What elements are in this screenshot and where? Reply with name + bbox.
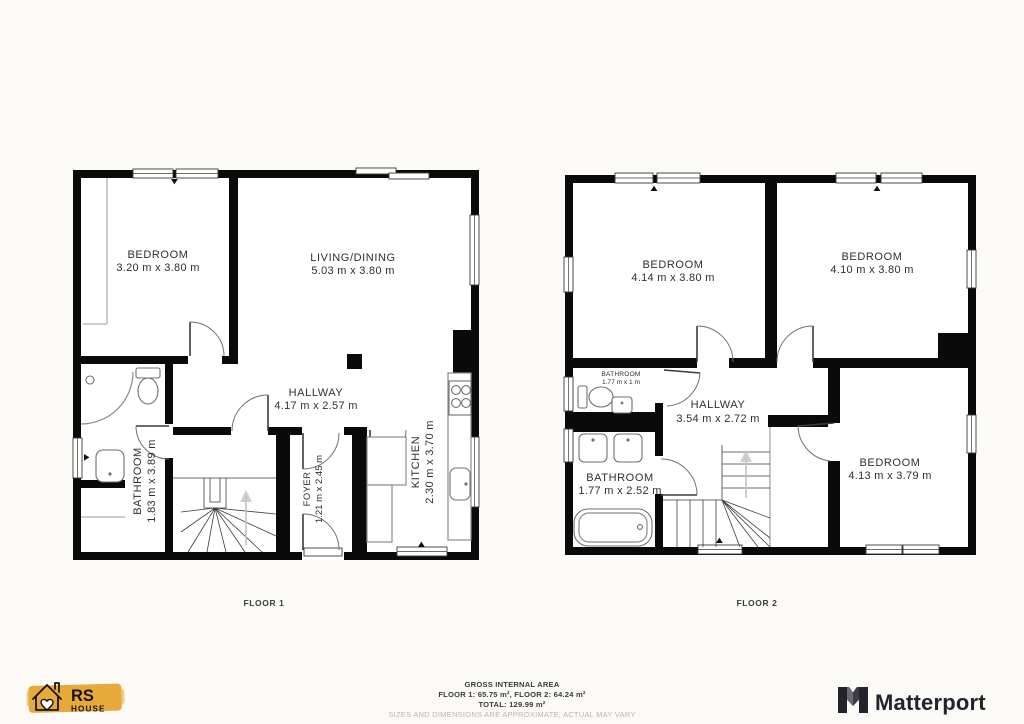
window <box>881 173 922 183</box>
room-label: HALLWAY <box>691 399 746 411</box>
window <box>564 377 573 411</box>
room-dims: 1.83 m x 3.89 m <box>146 439 158 522</box>
chimney-breast <box>938 333 968 358</box>
window <box>967 415 976 453</box>
matterport-icon <box>838 687 868 713</box>
chimney-breast <box>453 330 471 373</box>
room-label: LIVING/DINING <box>310 252 395 264</box>
room-dims: 4.14 m x 3.80 m <box>631 272 714 284</box>
room-label: BEDROOM <box>127 249 188 261</box>
entry-door <box>302 546 344 560</box>
room-label: BATHROOM <box>132 447 144 515</box>
sink-icon <box>450 468 470 500</box>
room-label: BEDROOM <box>859 457 920 469</box>
room-dims: 1.77 m x 2.52 m <box>578 485 661 497</box>
matterport-wordmark: Matterport <box>875 690 986 715</box>
footer: GROSS INTERNAL AREA FLOOR 1: 65.75 m², F… <box>388 680 635 719</box>
floor2-label: FLOOR 2 <box>736 598 777 608</box>
sink-icon <box>614 434 642 462</box>
floorplan-canvas: BEDROOM 3.20 m x 3.80 m LIVING/DINING 5.… <box>0 0 1024 724</box>
room-label: FOYER <box>302 472 313 507</box>
window <box>470 215 479 285</box>
room-label: BEDROOM <box>841 251 902 263</box>
floor1-plan: BEDROOM 3.20 m x 3.80 m LIVING/DINING 5.… <box>73 168 479 608</box>
window <box>657 173 700 183</box>
rs-house-sub: HOUSE <box>71 705 106 714</box>
floorplan-page: BEDROOM 3.20 m x 3.80 m LIVING/DINING 5.… <box>0 0 1024 724</box>
gross-internal-area-title: GROSS INTERNAL AREA <box>465 680 560 689</box>
window <box>967 250 976 288</box>
window <box>698 545 742 554</box>
room-label: KITCHEN <box>410 436 422 488</box>
window <box>73 438 82 478</box>
room-label: BEDROOM <box>642 259 703 271</box>
room-dims: 4.10 m x 3.80 m <box>830 264 913 276</box>
window <box>903 545 939 554</box>
sink-icon <box>579 434 607 462</box>
floor1-label: FLOOR 1 <box>243 598 284 608</box>
sink-icon <box>612 397 632 413</box>
window <box>836 173 876 183</box>
bathtub-icon <box>574 509 652 546</box>
room-dims: 4.17 m x 2.57 m <box>274 400 357 412</box>
sink-icon <box>96 450 124 482</box>
room-dims: 3.54 m x 2.72 m <box>676 413 759 425</box>
window <box>564 257 573 292</box>
stove-icon <box>449 381 471 415</box>
kitchen-island <box>367 437 406 485</box>
room-label: BATHROOM <box>586 472 654 484</box>
floor2-plan: BEDROOM 4.14 m x 3.80 m BEDROOM 4.10 m x… <box>564 173 976 608</box>
room-dims: 3.20 m x 3.80 m <box>116 262 199 274</box>
column <box>347 354 362 369</box>
rs-house-logo: RS HOUSE <box>26 683 125 714</box>
matterport-logo: Matterport <box>838 687 986 715</box>
disclaimer: SIZES AND DIMENSIONS ARE APPROXIMATE, AC… <box>388 710 635 719</box>
toilet-icon <box>136 368 160 404</box>
rs-house-name: RS <box>71 687 94 705</box>
window <box>133 169 173 178</box>
room-dims: 1.21 m x 2.45 m <box>314 455 325 523</box>
room-dims: 5.03 m x 3.80 m <box>311 265 394 277</box>
total-area: TOTAL: 129.99 m² <box>478 700 545 709</box>
room-label: HALLWAY <box>289 387 344 399</box>
window <box>176 169 218 178</box>
window <box>397 547 447 556</box>
room-dims: 4.13 m x 3.79 m <box>848 470 931 482</box>
room-label: BATHROOM <box>601 371 640 378</box>
floor-areas: FLOOR 1: 65.75 m², FLOOR 2: 64.24 m² <box>438 690 586 699</box>
room-dims: 2.30 m x 3.70 m <box>424 420 436 503</box>
window <box>564 429 573 462</box>
window <box>615 173 653 183</box>
toilet-icon <box>578 386 613 408</box>
room-dims: 1.77 m x 1 m <box>602 379 641 386</box>
kitchen-cabinet <box>367 485 392 542</box>
window <box>866 545 902 554</box>
